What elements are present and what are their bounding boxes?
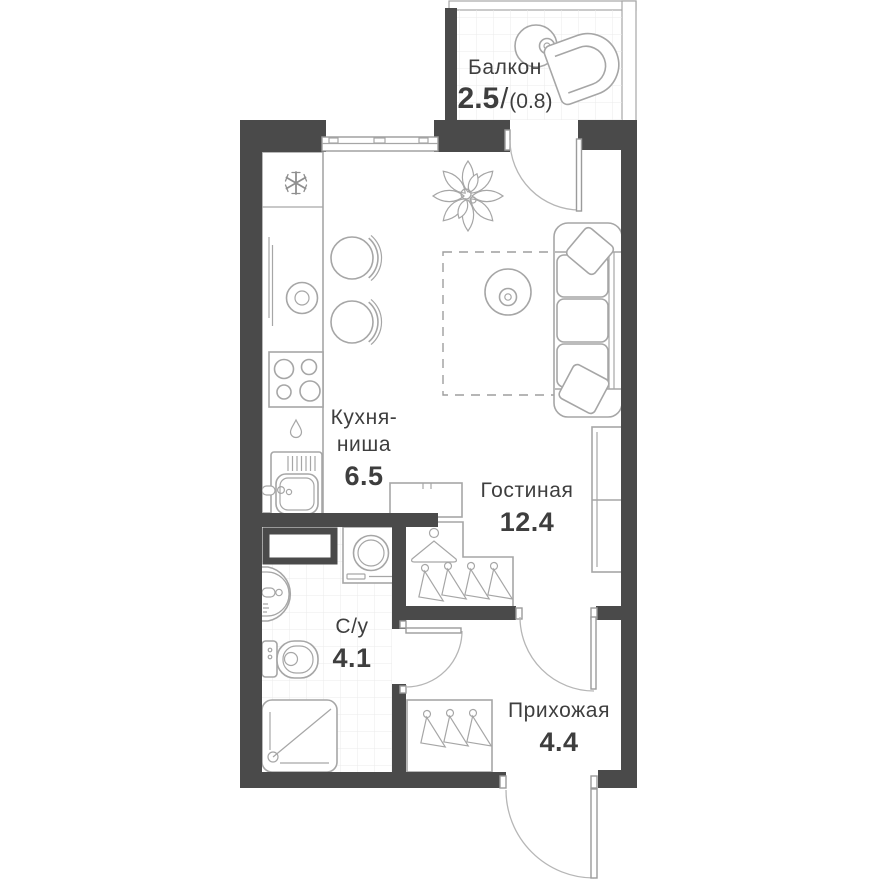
room-name: Балкон xyxy=(425,54,585,81)
sofa xyxy=(554,223,622,417)
counter-basin-icon xyxy=(287,283,318,314)
stove-icon xyxy=(269,352,323,407)
room-name-line2: ниша xyxy=(299,431,429,458)
room-label-living: Гостиная 12.4 xyxy=(452,477,602,537)
room-label-bathroom: С/у 4.1 xyxy=(302,613,402,673)
coffee-table-icon xyxy=(485,269,531,315)
top-wall xyxy=(434,120,510,152)
radiator xyxy=(269,237,273,326)
top-wall xyxy=(240,120,326,152)
room-label-balcony: Балкон 2.5 / (0.8) xyxy=(425,54,585,116)
area-divider: / xyxy=(500,83,508,116)
room-label-hallway: Прихожая 4.4 xyxy=(484,697,634,757)
room-label-kitchen: Кухня- ниша 6.5 xyxy=(299,404,429,491)
floor-plan-drawing xyxy=(0,0,880,880)
living-room-door xyxy=(516,608,597,691)
room-area: 4.1 xyxy=(302,643,402,673)
room-area: 12.4 xyxy=(452,507,602,537)
stool-icon xyxy=(331,299,382,344)
balcony-glazing-right xyxy=(622,1,636,122)
entrance-door xyxy=(500,776,597,878)
room-name: С/у xyxy=(302,613,402,640)
fridge-asterisk-icon xyxy=(286,172,307,194)
bath-right-wall xyxy=(392,684,406,774)
kitchen-bath-wall xyxy=(240,513,438,527)
balcony-railing-top xyxy=(449,1,636,10)
stool-icon xyxy=(331,235,382,280)
living-hall-wall xyxy=(400,606,516,620)
hall-closet xyxy=(407,700,492,772)
shower-icon xyxy=(262,700,337,772)
balcony-door xyxy=(505,130,582,211)
room-area: 6.5 xyxy=(299,461,429,491)
hallway-zone xyxy=(407,700,492,772)
floor-plan: Балкон 2.5 / (0.8) Кухня- ниша 6.5 Гости… xyxy=(0,0,880,880)
bottom-right-wall xyxy=(598,770,637,788)
bathroom-door xyxy=(400,621,462,693)
plant-icon xyxy=(433,161,503,231)
window xyxy=(322,137,438,151)
living-zone xyxy=(390,161,622,607)
room-name: Гостиная xyxy=(452,477,602,504)
right-wall xyxy=(621,120,637,773)
duct-shaft xyxy=(266,531,334,561)
bottom-wall xyxy=(240,772,506,788)
left-wall xyxy=(240,120,262,788)
room-area: 4.4 xyxy=(484,727,634,757)
area-secondary: (0.8) xyxy=(509,90,552,114)
area-main: 2.5 xyxy=(458,82,500,116)
room-area: 2.5 / (0.8) xyxy=(425,82,585,116)
living-hall-wall xyxy=(596,606,637,620)
washing-machine-icon xyxy=(343,527,400,583)
room-name: Прихожая xyxy=(484,697,634,724)
room-name-line1: Кухня- xyxy=(299,404,429,431)
